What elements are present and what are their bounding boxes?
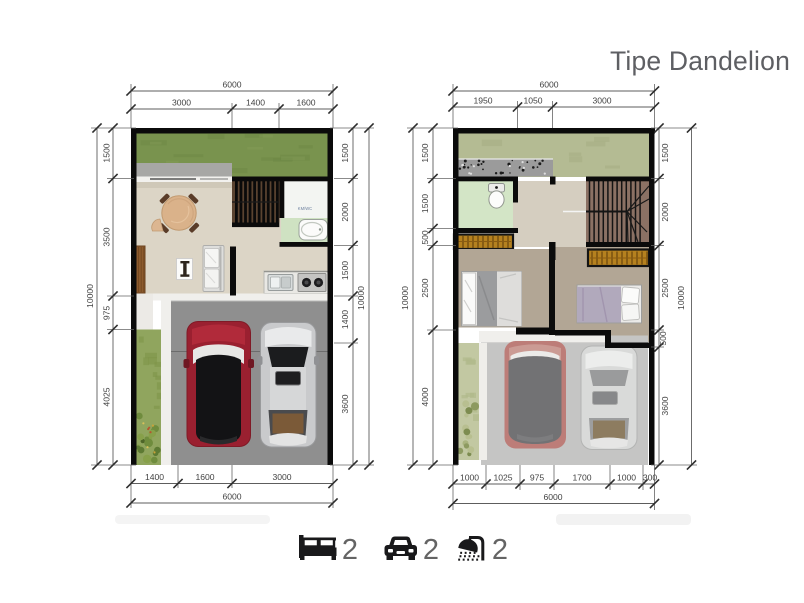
svg-text:6000: 6000 <box>222 80 241 90</box>
svg-text:300: 300 <box>643 473 658 483</box>
svg-text:1050: 1050 <box>523 96 542 106</box>
svg-text:2000: 2000 <box>660 202 670 221</box>
svg-text:1500: 1500 <box>340 143 350 162</box>
svg-text:3000: 3000 <box>592 96 611 106</box>
svg-text:1950: 1950 <box>473 96 492 106</box>
svg-text:1500: 1500 <box>340 261 350 280</box>
svg-text:3600: 3600 <box>340 394 350 413</box>
svg-text:1400: 1400 <box>145 472 164 482</box>
svg-text:3500: 3500 <box>102 227 112 246</box>
svg-text:1500: 1500 <box>660 143 670 162</box>
svg-text:2500: 2500 <box>420 278 430 297</box>
svg-text:1600: 1600 <box>296 98 315 108</box>
svg-text:1700: 1700 <box>572 473 591 483</box>
svg-text:3000: 3000 <box>272 472 291 482</box>
svg-text:1500: 1500 <box>102 143 112 162</box>
svg-text:6000: 6000 <box>543 492 562 502</box>
svg-text:6000: 6000 <box>222 492 241 502</box>
svg-text:975: 975 <box>530 473 545 483</box>
svg-text:6000: 6000 <box>539 80 558 90</box>
svg-text:4025: 4025 <box>102 387 112 406</box>
svg-text:10000: 10000 <box>400 286 410 310</box>
svg-text:1600: 1600 <box>195 472 214 482</box>
svg-text:KM/WC: KM/WC <box>298 206 312 211</box>
svg-text:2: 2 <box>492 534 508 566</box>
svg-text:2: 2 <box>423 534 439 566</box>
svg-text:500: 500 <box>420 230 430 245</box>
svg-text:2500: 2500 <box>660 278 670 297</box>
svg-text:1500: 1500 <box>420 143 430 162</box>
svg-text:10000: 10000 <box>85 284 95 308</box>
svg-text:3600: 3600 <box>660 396 670 415</box>
svg-text:10000: 10000 <box>676 286 686 310</box>
svg-text:1500: 1500 <box>420 194 430 213</box>
svg-text:1400: 1400 <box>246 98 265 108</box>
svg-text:4000: 4000 <box>420 387 430 406</box>
svg-text:1025: 1025 <box>493 473 512 483</box>
svg-text:2: 2 <box>342 534 358 566</box>
svg-text:1000: 1000 <box>460 473 479 483</box>
svg-text:10000: 10000 <box>356 286 366 310</box>
svg-text:1400: 1400 <box>340 310 350 329</box>
svg-text:Tipe Dandelion: Tipe Dandelion <box>610 46 790 76</box>
svg-text:1000: 1000 <box>617 473 636 483</box>
svg-text:3000: 3000 <box>172 98 191 108</box>
svg-text:500: 500 <box>658 331 668 346</box>
svg-text:2000: 2000 <box>340 202 350 221</box>
svg-text:975: 975 <box>102 306 112 321</box>
